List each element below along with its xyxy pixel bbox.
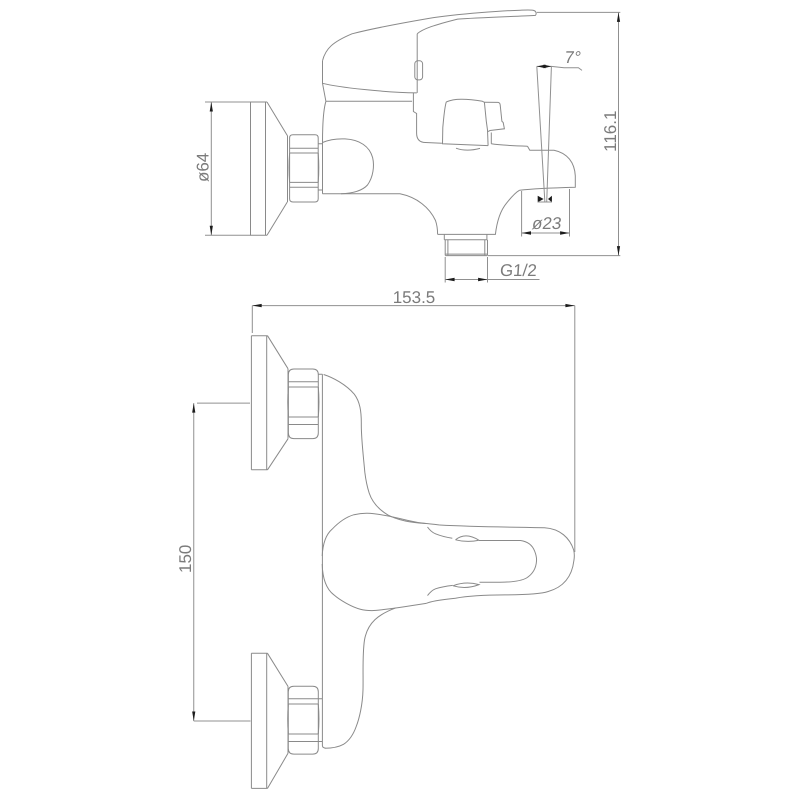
svg-text:ø23: ø23: [531, 214, 563, 233]
svg-text:G1/2: G1/2: [499, 261, 537, 280]
svg-text:116.1: 116.1: [601, 111, 620, 152]
svg-text:150: 150: [176, 545, 195, 573]
svg-text:7°: 7°: [563, 48, 582, 67]
svg-text:153.5: 153.5: [393, 288, 436, 307]
svg-text:ø64: ø64: [194, 153, 213, 182]
